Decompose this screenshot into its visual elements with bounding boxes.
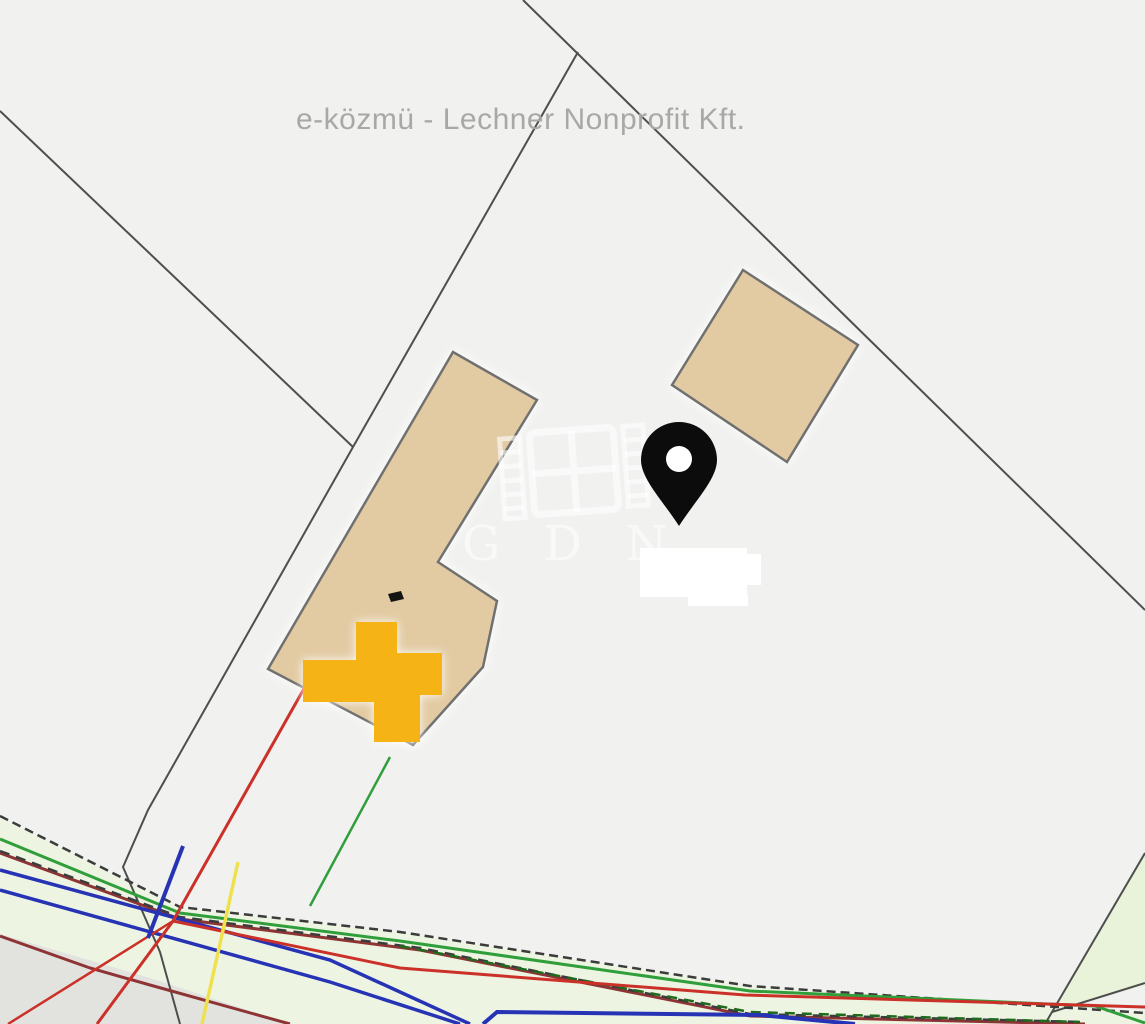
map-canvas[interactable]: G D N e-közmü - Lechner Nonprofit Kft. xyxy=(0,0,1145,1024)
map-overlay-layer xyxy=(0,0,1145,1024)
patch-rect xyxy=(747,554,761,585)
service-title: e-közmü - Lechner Nonprofit Kft. xyxy=(296,103,746,137)
location-pin-hole xyxy=(666,446,692,472)
patch-rect xyxy=(640,548,747,597)
location-pin-marker[interactable] xyxy=(641,422,717,526)
patch-rect xyxy=(688,595,748,606)
hidden-label-patch xyxy=(640,548,761,606)
location-pin-icon xyxy=(641,422,717,526)
